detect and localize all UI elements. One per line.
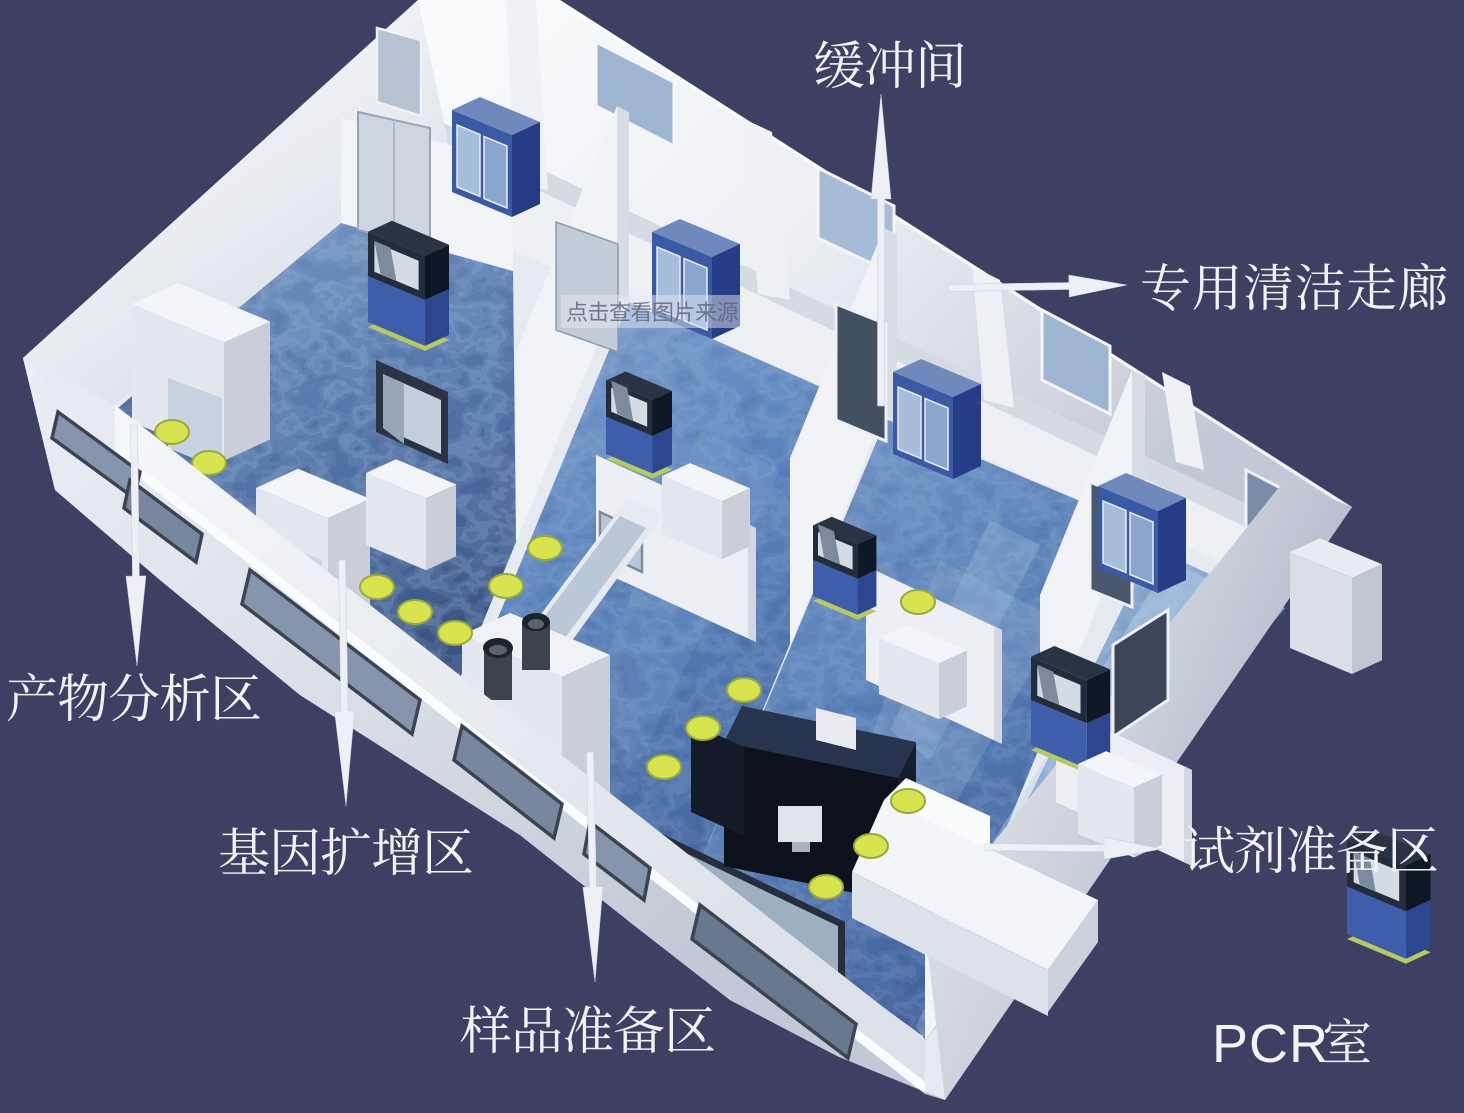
svg-text:PCR: PCR <box>1212 1014 1329 1074</box>
